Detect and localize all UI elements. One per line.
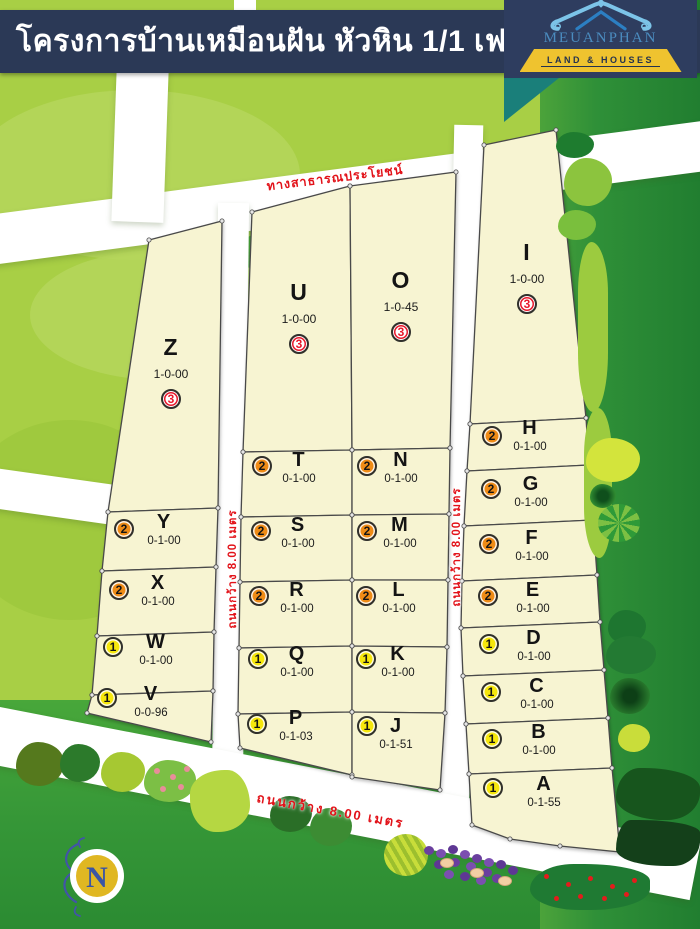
plot-corner-node bbox=[464, 722, 468, 726]
plot-corner-node bbox=[598, 620, 602, 624]
plot-corner-node bbox=[238, 746, 242, 750]
plot-U[interactable] bbox=[243, 186, 352, 452]
plot-corner-node bbox=[554, 128, 558, 132]
plot-corner-node bbox=[470, 823, 474, 827]
plot-D[interactable] bbox=[461, 622, 604, 676]
plot-corner-node bbox=[241, 450, 245, 454]
plot-N[interactable] bbox=[352, 448, 450, 515]
plot-corner-node bbox=[209, 740, 213, 744]
stone bbox=[440, 858, 454, 868]
plot-F[interactable] bbox=[462, 520, 597, 581]
plot-Q[interactable] bbox=[238, 646, 352, 714]
tree bbox=[616, 768, 700, 820]
plot-Z[interactable] bbox=[108, 221, 222, 512]
plot-L[interactable] bbox=[352, 580, 448, 647]
plot-corner-node bbox=[350, 578, 354, 582]
plot-corner-node bbox=[482, 143, 486, 147]
plot-corner-node bbox=[85, 711, 89, 715]
plot-A[interactable] bbox=[469, 768, 620, 852]
plot-corner-node bbox=[350, 644, 354, 648]
plot-corner-node bbox=[106, 510, 110, 514]
plot-corner-node bbox=[445, 645, 449, 649]
plot-B[interactable] bbox=[466, 718, 612, 774]
plot-corner-node bbox=[595, 573, 599, 577]
berry-bush bbox=[530, 864, 650, 910]
page-title: โครงการบ้านเหมือนฝัน หัวหิน 1/1 เฟส 2 bbox=[0, 18, 551, 65]
stone bbox=[470, 868, 484, 878]
plot-corner-node bbox=[350, 775, 354, 779]
plot-corner-node bbox=[211, 689, 215, 693]
plot-corner-node bbox=[350, 710, 354, 714]
plot-corner-node bbox=[448, 446, 452, 450]
stone bbox=[498, 876, 512, 886]
logo-tagline: LAND & HOUSES bbox=[541, 55, 660, 67]
plot-J[interactable] bbox=[352, 712, 445, 790]
road-width-label: ถนนกว้าง 8.00 เมตร bbox=[224, 484, 242, 654]
plot-corner-node bbox=[438, 788, 442, 792]
plot-V[interactable] bbox=[87, 691, 213, 742]
hedge bbox=[578, 242, 608, 412]
plot-corner-node bbox=[606, 716, 610, 720]
compass-north-letter: N bbox=[86, 861, 108, 894]
plot-corner-node bbox=[558, 844, 562, 848]
plot-corner-node bbox=[467, 772, 471, 776]
plot-corner-node bbox=[90, 693, 94, 697]
plot-C[interactable] bbox=[463, 670, 608, 724]
logo-ribbon: LAND & HOUSES bbox=[520, 49, 682, 72]
plot-S[interactable] bbox=[240, 515, 352, 582]
plot-corner-node bbox=[443, 711, 447, 715]
plot-O[interactable] bbox=[350, 172, 456, 450]
plot-H[interactable] bbox=[467, 418, 589, 471]
plot-corner-node bbox=[212, 630, 216, 634]
plot-corner-node bbox=[461, 674, 465, 678]
plot-R[interactable] bbox=[239, 580, 352, 648]
bush bbox=[384, 834, 428, 876]
compass: N bbox=[44, 832, 154, 924]
road-width-label: ถนนกว้าง 8.00 เมตร bbox=[448, 462, 466, 632]
plot-corner-node bbox=[236, 712, 240, 716]
plot-corner-node bbox=[610, 766, 614, 770]
plot-M[interactable] bbox=[352, 514, 449, 580]
plot-corner-node bbox=[147, 238, 151, 242]
plot-corner-node bbox=[214, 565, 218, 569]
logo-roof-icon bbox=[541, 0, 661, 32]
plot-corner-node bbox=[220, 219, 224, 223]
bush bbox=[598, 504, 640, 542]
dark-leaves bbox=[616, 820, 700, 866]
plot-corner-node bbox=[250, 210, 254, 214]
plot-T[interactable] bbox=[241, 450, 352, 517]
plot-E[interactable] bbox=[461, 575, 600, 628]
plot-corner-node bbox=[602, 668, 606, 672]
logo-name: MEUANPHAN bbox=[544, 30, 658, 47]
plot-W[interactable] bbox=[92, 632, 214, 695]
plot-X[interactable] bbox=[97, 567, 216, 636]
plot-corner-node bbox=[95, 634, 99, 638]
plot-corner-node bbox=[454, 170, 458, 174]
plot-corner-node bbox=[584, 416, 588, 420]
plot-G[interactable] bbox=[464, 465, 593, 526]
plot-corner-node bbox=[350, 513, 354, 517]
plot-corner-node bbox=[508, 837, 512, 841]
purple-flowers bbox=[424, 846, 434, 855]
plot-P[interactable] bbox=[238, 712, 352, 775]
company-logo: MEUANPHAN LAND & HOUSES bbox=[504, 0, 697, 78]
plot-corner-node bbox=[350, 448, 354, 452]
site-plan-map: ทางสาธารณประโยชน์ ถนนกว้าง 8.00 เมตร ถนน… bbox=[0, 0, 700, 929]
plot-Y[interactable] bbox=[102, 508, 218, 571]
plot-corner-node bbox=[216, 506, 220, 510]
plot-corner-node bbox=[100, 569, 104, 573]
plot-K[interactable] bbox=[352, 646, 447, 713]
plot-corner-node bbox=[468, 422, 472, 426]
